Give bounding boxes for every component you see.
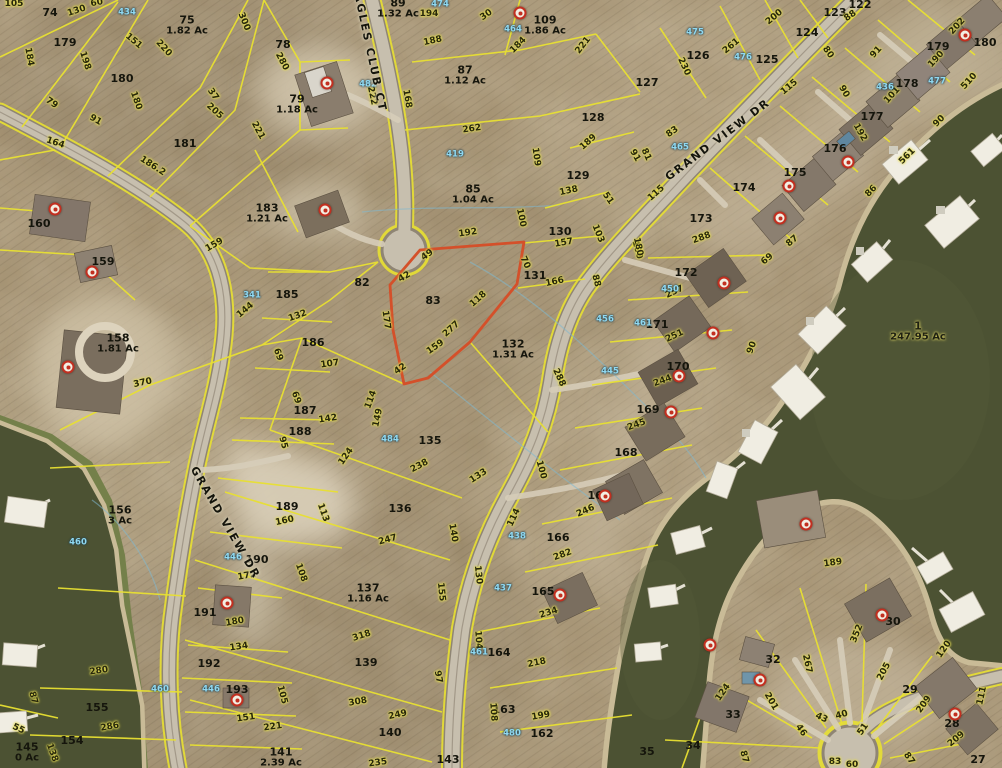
dimension-label: 86 bbox=[864, 184, 880, 200]
blue-label: 456 bbox=[596, 315, 614, 324]
address-marker-icon[interactable] bbox=[800, 518, 813, 531]
dimension-label: 205 bbox=[204, 102, 224, 122]
parcel-label[interactable]: 34 bbox=[685, 740, 700, 752]
parcel-label[interactable]: 168 bbox=[615, 447, 638, 459]
address-marker-icon[interactable] bbox=[321, 77, 334, 90]
blue-label: 464 bbox=[504, 25, 522, 34]
address-marker-icon[interactable] bbox=[783, 180, 796, 193]
parcel-label[interactable]: 175 bbox=[784, 167, 807, 179]
dimension-label: 561 bbox=[898, 147, 918, 167]
parcel-label[interactable]: 791.18 Ac bbox=[276, 94, 318, 117]
dimension-label: 124 bbox=[715, 683, 734, 704]
dimension-label: 251 bbox=[664, 329, 685, 346]
address-marker-icon[interactable] bbox=[319, 204, 332, 217]
dimension-label: 107 bbox=[320, 359, 340, 371]
dimension-label: 109 bbox=[529, 147, 541, 167]
parcel-label[interactable]: 192 bbox=[198, 658, 221, 670]
parcel-label[interactable]: 181 bbox=[174, 138, 197, 150]
address-marker-icon[interactable] bbox=[949, 708, 962, 721]
dimension-label: 155 bbox=[434, 582, 446, 602]
parcel-label[interactable]: 1412.39 Ac bbox=[260, 747, 302, 768]
dimension-label: 262 bbox=[462, 124, 482, 136]
dimension-label: 157 bbox=[554, 238, 574, 251]
blue-label: 341 bbox=[243, 291, 261, 300]
dimension-label: 184 bbox=[22, 47, 35, 67]
dimension-label: 221 bbox=[574, 36, 593, 57]
parcel-label[interactable]: 1831.21 Ac bbox=[246, 203, 288, 226]
parcel-label[interactable]: 871.12 Ac bbox=[444, 65, 486, 88]
map-labels: 74179751.82 Ac78180791.18 Ac1811601831.2… bbox=[0, 0, 1002, 768]
dimension-label: 209 bbox=[916, 695, 935, 716]
parcel-label[interactable]: 131 bbox=[524, 270, 547, 282]
address-marker-icon[interactable] bbox=[514, 7, 527, 20]
address-marker-icon[interactable] bbox=[231, 694, 244, 707]
parcel-label[interactable]: 143 bbox=[437, 754, 460, 766]
parcel-label[interactable]: 173 bbox=[690, 213, 713, 225]
parcel-map-viewport[interactable]: 74179751.82 Ac78180791.18 Ac1811601831.2… bbox=[0, 0, 1002, 768]
address-marker-icon[interactable] bbox=[673, 370, 686, 383]
dimension-label: 42 bbox=[393, 362, 409, 377]
address-marker-icon[interactable] bbox=[86, 266, 99, 279]
dimension-label: 189 bbox=[579, 133, 599, 153]
blue-label: 465 bbox=[671, 143, 689, 152]
parcel-label[interactable]: 185 bbox=[276, 289, 299, 301]
dimension-label: 87 bbox=[26, 691, 39, 706]
parcel-label[interactable]: 33 bbox=[725, 709, 740, 721]
dimension-label: 90 bbox=[746, 340, 759, 355]
dimension-label: 43 bbox=[813, 712, 828, 726]
dimension-label: 130 bbox=[67, 4, 88, 19]
water-parcel-label[interactable]: 1247.95 Ac bbox=[890, 321, 946, 344]
parcel-label[interactable]: 127 bbox=[636, 77, 659, 89]
dimension-label: 300 bbox=[235, 11, 251, 32]
dimension-label: 201 bbox=[761, 691, 779, 712]
dimension-label: 97 bbox=[431, 670, 443, 684]
dimension-label: 151 bbox=[123, 32, 144, 52]
dimension-label: 51 bbox=[599, 191, 614, 207]
dimension-label: 103 bbox=[589, 223, 605, 244]
parcel-label[interactable]: 154 bbox=[61, 735, 84, 747]
dimension-label: 118 bbox=[469, 290, 489, 310]
parcel-label[interactable]: 177 bbox=[861, 111, 884, 123]
dimension-label: 510 bbox=[960, 72, 980, 92]
address-marker-icon[interactable] bbox=[221, 597, 234, 610]
dimension-label: 149 bbox=[372, 408, 385, 428]
dimension-label: 234 bbox=[539, 606, 560, 621]
dimension-label: 115 bbox=[647, 184, 667, 204]
dimension-label: 249 bbox=[388, 709, 408, 722]
dimension-label: 200 bbox=[765, 8, 786, 28]
dimension-label: 87 bbox=[785, 234, 801, 249]
address-marker-icon[interactable] bbox=[49, 203, 62, 216]
parcel-label[interactable]: 83 bbox=[425, 295, 440, 307]
parcel-label[interactable]: 139 bbox=[355, 657, 378, 669]
dimension-label: 87 bbox=[900, 751, 915, 767]
address-marker-icon[interactable] bbox=[842, 156, 855, 169]
dimension-label: 113 bbox=[314, 503, 330, 524]
parcel-label[interactable]: 180 bbox=[111, 73, 134, 85]
dimension-label: 159 bbox=[204, 237, 225, 255]
dimension-label: 140 bbox=[446, 523, 459, 543]
dimension-label: 288 bbox=[550, 367, 567, 388]
parcel-label[interactable]: 172 bbox=[675, 267, 698, 279]
parcel-label[interactable]: 165 bbox=[532, 586, 555, 598]
parcel-label[interactable]: 32 bbox=[765, 654, 780, 666]
dimension-label: 199 bbox=[531, 711, 551, 724]
dimension-label: 91 bbox=[869, 45, 885, 61]
dimension-label: 144 bbox=[236, 301, 257, 321]
parcel-label[interactable]: 78 bbox=[275, 39, 290, 51]
dimension-label: 238 bbox=[409, 458, 430, 475]
blue-label: 461 bbox=[470, 648, 488, 657]
dimension-label: 60 bbox=[90, 0, 104, 10]
parcel-label[interactable]: 1091.86 Ac bbox=[524, 15, 566, 38]
parcel-label[interactable]: 82 bbox=[354, 277, 369, 289]
dimension-label: 46 bbox=[792, 723, 807, 739]
blue-label: 437 bbox=[494, 584, 512, 593]
dimension-label: 184 bbox=[509, 36, 529, 56]
parcel-label[interactable]: 140 bbox=[379, 727, 402, 739]
parcel-label[interactable]: 125 bbox=[756, 54, 779, 66]
dimension-label: 318 bbox=[352, 629, 373, 644]
dimension-label: 134 bbox=[229, 642, 249, 654]
parcel-label[interactable]: 128 bbox=[582, 112, 605, 124]
dimension-label: 108 bbox=[486, 702, 497, 721]
address-marker-icon[interactable] bbox=[665, 406, 678, 419]
address-marker-icon[interactable] bbox=[554, 589, 567, 602]
dimension-label: 115 bbox=[780, 78, 801, 98]
dimension-label: 218 bbox=[527, 657, 547, 670]
dimension-label: 114 bbox=[507, 507, 524, 528]
dimension-label: 69 bbox=[760, 252, 776, 267]
parcel-label[interactable]: 179 bbox=[54, 37, 77, 49]
parcel-label[interactable]: 1321.31 Ac bbox=[492, 339, 534, 362]
dimension-label: 108 bbox=[292, 563, 308, 584]
dimension-label: 168 bbox=[400, 89, 413, 109]
dimension-label: 124 bbox=[338, 447, 357, 468]
parcel-label[interactable]: 187 bbox=[294, 405, 317, 417]
parcel-label[interactable]: 74 bbox=[42, 7, 57, 19]
parcel-label[interactable]: 160 bbox=[28, 218, 51, 230]
dimension-label: 159 bbox=[426, 339, 447, 358]
dimension-label: 192 bbox=[850, 122, 868, 143]
parcel-label[interactable]: 35 bbox=[639, 746, 654, 758]
parcel-label[interactable]: 186 bbox=[302, 337, 325, 349]
parcel-label[interactable]: 169 bbox=[637, 404, 660, 416]
dimension-label: 192 bbox=[458, 228, 478, 240]
parcel-label[interactable]: 164 bbox=[488, 647, 511, 659]
dimension-label: 100 bbox=[513, 208, 526, 228]
dimension-label: 177 bbox=[379, 310, 391, 330]
parcel-label[interactable]: 155 bbox=[86, 702, 109, 714]
dimension-label: 235 bbox=[368, 758, 388, 768]
parcel-label[interactable]: 1581.81 Ac bbox=[97, 333, 139, 356]
parcel-label[interactable]: 1563 Ac bbox=[108, 505, 132, 528]
dimension-label: 37 bbox=[204, 87, 219, 103]
parcel-label[interactable]: 891.32 Ac bbox=[377, 0, 419, 20]
dimension-label: 130 bbox=[471, 565, 483, 585]
dimension-label: 79 bbox=[43, 96, 59, 111]
dimension-label: 220 bbox=[153, 39, 173, 59]
dimension-label: 288 bbox=[692, 231, 713, 247]
dimension-label: 88 bbox=[589, 274, 602, 289]
dimension-label: 80 bbox=[819, 45, 834, 61]
dimension-label: 198 bbox=[76, 51, 91, 72]
dimension-label: 120 bbox=[936, 640, 955, 661]
dimension-label: 90 bbox=[836, 84, 851, 100]
dimension-label: 81 bbox=[638, 147, 652, 162]
parcel-label[interactable]: 135 bbox=[419, 435, 442, 447]
parcel-label[interactable]: 189 bbox=[276, 501, 299, 513]
dimension-label: 280 bbox=[272, 51, 289, 72]
dimension-label: 267 bbox=[799, 654, 812, 674]
dimension-label: 95 bbox=[276, 436, 289, 451]
dimension-label: 151 bbox=[236, 713, 256, 725]
dimension-label: 308 bbox=[348, 697, 368, 710]
blue-label: 460 bbox=[69, 538, 87, 547]
dimension-label: 247 bbox=[378, 534, 399, 548]
dimension-label: 100 bbox=[533, 460, 547, 481]
address-marker-icon[interactable] bbox=[754, 674, 767, 687]
dimension-label: 138 bbox=[559, 185, 579, 198]
parcel-label[interactable]: 191 bbox=[194, 607, 217, 619]
blue-label: 434 bbox=[118, 8, 136, 17]
dimension-label: 105 bbox=[5, 0, 24, 10]
dimension-label: 221 bbox=[248, 120, 265, 141]
address-marker-icon[interactable] bbox=[62, 361, 75, 374]
blue-label: 477 bbox=[928, 77, 946, 86]
dimension-label: 286 bbox=[100, 722, 120, 735]
dimension-label: 83 bbox=[829, 758, 842, 768]
blue-label: 446 bbox=[202, 685, 220, 694]
dimension-label: 186.2 bbox=[137, 155, 166, 179]
dimension-label: 245 bbox=[627, 418, 648, 434]
dimension-label: 42 bbox=[397, 271, 413, 286]
dimension-label: 277 bbox=[442, 320, 462, 340]
dimension-label: 51 bbox=[856, 722, 871, 738]
parcel-label[interactable]: 1450 Ac bbox=[15, 742, 39, 765]
dimension-label: 91 bbox=[87, 114, 103, 129]
dimension-label: 133 bbox=[468, 468, 489, 486]
address-marker-icon[interactable] bbox=[876, 609, 889, 622]
parcel-label[interactable]: 124 bbox=[796, 27, 819, 39]
parcel-label[interactable]: 129 bbox=[567, 170, 590, 182]
dimension-label: 138 bbox=[43, 743, 59, 764]
dimension-label: 370 bbox=[133, 377, 153, 390]
street-label: GRAND VIEW DR bbox=[663, 97, 772, 183]
parcel-label[interactable]: 851.04 Ac bbox=[452, 184, 494, 207]
address-marker-icon[interactable] bbox=[959, 29, 972, 42]
blue-label: 476 bbox=[734, 53, 752, 62]
dimension-label: 244 bbox=[653, 374, 674, 390]
dimension-label: 246 bbox=[575, 504, 596, 521]
dimension-label: 282 bbox=[553, 548, 574, 564]
dimension-label: 142 bbox=[318, 414, 338, 426]
dimension-label: 352 bbox=[850, 623, 866, 644]
dimension-label: 166 bbox=[545, 276, 565, 289]
dimension-label: 105 bbox=[274, 685, 288, 706]
dimension-label: 160 bbox=[275, 515, 295, 528]
street-label: GRAND VIEW DR bbox=[188, 465, 262, 582]
address-marker-icon[interactable] bbox=[704, 639, 717, 652]
parcel-label[interactable]: 180 bbox=[974, 37, 997, 49]
parcel-label[interactable]: 29 bbox=[902, 684, 917, 696]
dimension-label: 55 bbox=[10, 723, 25, 737]
blue-label: 419 bbox=[446, 150, 464, 159]
blue-label: 450 bbox=[661, 285, 679, 294]
dimension-label: 132 bbox=[288, 309, 309, 325]
parcel-label[interactable]: 751.82 Ac bbox=[166, 15, 208, 38]
dimension-label: 221 bbox=[263, 722, 283, 734]
dimension-label: 180 bbox=[225, 617, 245, 630]
dimension-label: 209 bbox=[947, 730, 968, 750]
blue-label: 475 bbox=[686, 28, 704, 37]
parcel-label[interactable]: 130 bbox=[549, 226, 572, 238]
dimension-label: 194 bbox=[420, 10, 439, 20]
parcel-label[interactable]: 174 bbox=[733, 182, 756, 194]
blue-label: 461 bbox=[634, 319, 652, 328]
dimension-label: 40 bbox=[835, 710, 850, 723]
dimension-label: 30 bbox=[479, 8, 495, 23]
parcel-label[interactable]: 188 bbox=[289, 426, 312, 438]
parcel-label[interactable]: 136 bbox=[389, 503, 412, 515]
parcel-label[interactable]: 27 bbox=[970, 754, 985, 766]
dimension-label: 69 bbox=[270, 347, 283, 362]
blue-label: 474 bbox=[431, 0, 449, 9]
dimension-label: 60 bbox=[846, 761, 859, 768]
blue-label: 480 bbox=[503, 729, 521, 738]
dimension-label: 164 bbox=[45, 136, 66, 151]
dimension-label: 49 bbox=[420, 248, 436, 263]
address-marker-icon[interactable] bbox=[718, 277, 731, 290]
dimension-label: 83 bbox=[665, 125, 681, 140]
parcel-label[interactable]: 166 bbox=[547, 532, 570, 544]
address-marker-icon[interactable] bbox=[599, 490, 612, 503]
blue-label: 436 bbox=[876, 83, 894, 92]
dimension-label: 205 bbox=[876, 661, 893, 682]
dimension-label: 111 bbox=[976, 686, 989, 706]
dimension-label: 189 bbox=[823, 558, 843, 570]
dimension-label: 69 bbox=[288, 390, 301, 405]
blue-label: 460 bbox=[151, 685, 169, 694]
dimension-label: 180 bbox=[127, 91, 143, 112]
blue-label: 438 bbox=[508, 532, 526, 541]
dimension-label: 188 bbox=[423, 35, 443, 48]
blue-label: 445 bbox=[601, 367, 619, 376]
parcel-label[interactable]: 162 bbox=[531, 728, 554, 740]
dimension-label: 280 bbox=[89, 666, 109, 678]
address-marker-icon[interactable] bbox=[774, 212, 787, 225]
blue-label: 484 bbox=[381, 435, 399, 444]
parcel-label[interactable]: 1371.16 Ac bbox=[347, 583, 389, 606]
dimension-label: 87 bbox=[737, 750, 750, 765]
dimension-label: 90 bbox=[932, 114, 948, 130]
parcel-label[interactable]: 126 bbox=[687, 50, 710, 62]
parcel-label[interactable]: 176 bbox=[824, 143, 847, 155]
address-marker-icon[interactable] bbox=[707, 327, 720, 340]
